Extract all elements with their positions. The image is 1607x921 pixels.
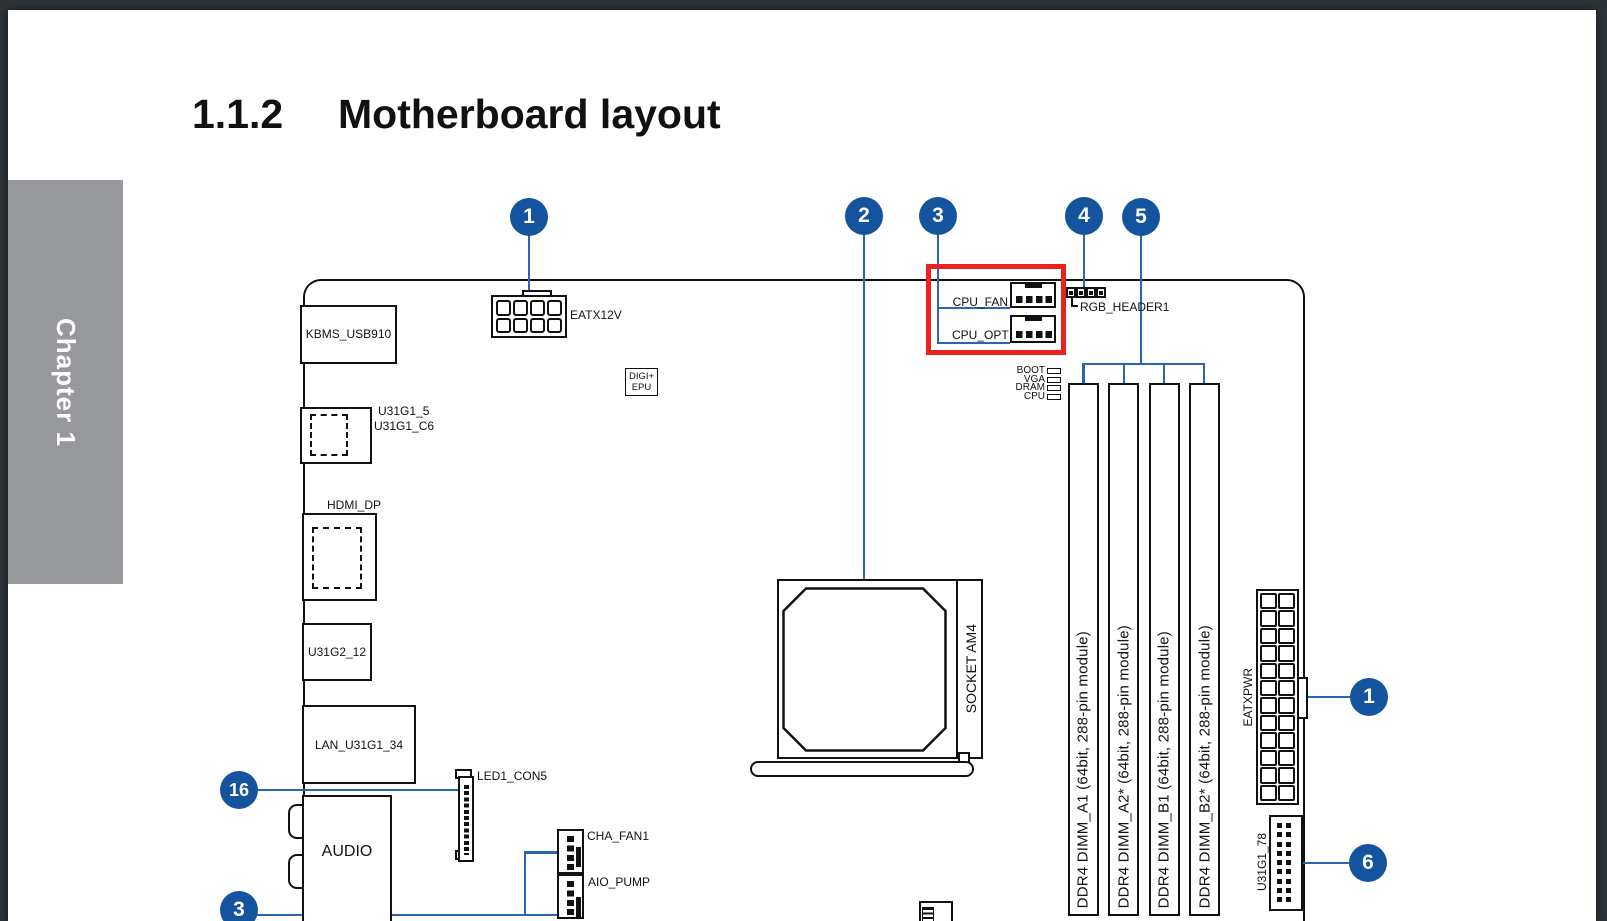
led1-con5-connector xyxy=(458,776,474,862)
eatxpwr-label: EATXPWR xyxy=(1241,668,1255,726)
leader-line-ledcon xyxy=(239,789,459,792)
u31g1-78-pin xyxy=(1277,842,1282,847)
dram-led xyxy=(1047,385,1061,391)
usb-type-connector xyxy=(300,407,372,464)
eatxpwr-pin xyxy=(1278,628,1295,644)
rgb-header-pin xyxy=(1076,287,1086,298)
eatxpwr-pin xyxy=(1260,732,1277,748)
callout-6-u31g178: 6 xyxy=(1349,844,1387,882)
callout-1-eatxpwr: 1 xyxy=(1350,678,1388,716)
led1-con5-label: LED1_CON5 xyxy=(477,770,547,783)
u31g1-78-connector xyxy=(1269,815,1303,911)
eatxpwr-pin xyxy=(1278,732,1295,748)
eatx12v-pin xyxy=(513,300,528,316)
rgb-header-bracket xyxy=(1071,298,1078,307)
socket-am4-label-strip: SOCKET AM4 xyxy=(958,579,983,759)
eatxpwr-pin xyxy=(1278,645,1295,661)
leader-riser-chafan xyxy=(524,851,527,916)
eatxpwr-pin xyxy=(1260,593,1277,609)
eatx12v-pin xyxy=(496,300,511,316)
eatxpwr-pin xyxy=(1278,715,1295,731)
callout-5-dimm: 5 xyxy=(1122,198,1160,236)
eatxpwr-label-wrap: EATXPWR xyxy=(1241,630,1255,765)
vga-led xyxy=(1047,377,1061,383)
section-number: 1.1.2 xyxy=(192,92,283,136)
u31g1-78-pin xyxy=(1286,860,1291,865)
socket-lever xyxy=(750,761,974,777)
socket-am4-label: SOCKET AM4 xyxy=(963,624,979,713)
usb-port-dashed xyxy=(310,414,348,456)
rgb-header-pins xyxy=(1066,287,1106,298)
cha-fan1-connector xyxy=(557,829,584,874)
eatxpwr-pin xyxy=(1260,663,1277,679)
page-title: Motherboard layout xyxy=(338,92,721,136)
leader-branch-chafan xyxy=(525,851,558,854)
u31g1-78-pin xyxy=(1286,888,1291,893)
u31g1-78-pin xyxy=(1277,860,1282,865)
dimm-slot-b1: DDR4 DIMM_B1 (64bit, 288-pin module) xyxy=(1149,383,1180,916)
dimm-slot-a1-label: DDR4 DIMM_A1 (64bit, 288-pin module) xyxy=(1075,631,1092,908)
aio-pump-connector xyxy=(557,874,584,919)
aio-pump-notch xyxy=(576,897,581,917)
eatxpwr-pin xyxy=(1278,680,1295,696)
eatxpwr-pin xyxy=(1278,767,1295,783)
eatx12v-pin xyxy=(496,318,511,334)
u31g1-78-pin xyxy=(1286,897,1291,902)
eatxpwr-pin xyxy=(1278,750,1295,766)
callout-4-rgb: 4 xyxy=(1065,197,1103,235)
aio-pump-pins xyxy=(567,881,574,915)
u31g1-78-pin xyxy=(1277,832,1282,837)
u31g1-78-pin xyxy=(1277,823,1282,828)
eatxpwr-pin xyxy=(1260,767,1277,783)
eatxpwr-pin xyxy=(1260,785,1277,801)
leader-line-dimm xyxy=(1140,217,1143,364)
manual-page: Chapter 1 1.1.2 Motherboard layout KBMS_… xyxy=(8,10,1596,921)
led1-con5-pins xyxy=(464,785,469,855)
eatxpwr-pin xyxy=(1260,697,1277,713)
u31g1-78-pin xyxy=(1277,851,1282,856)
eatx12v-pin xyxy=(547,300,562,316)
u31g1-78-pin xyxy=(1277,879,1282,884)
eatxpwr-pin xyxy=(1278,697,1295,713)
eatx12v-pin xyxy=(530,318,545,334)
u31g1-78-pin xyxy=(1286,869,1291,874)
bottom-partial-connector xyxy=(919,901,953,921)
chapter-tab: Chapter 1 xyxy=(8,180,123,584)
kbms-usb-label: KBMS_USB910 xyxy=(306,328,391,341)
u31g1-78-label-wrap: U31G1_78 xyxy=(1255,822,1268,902)
rgb-header-pin xyxy=(1096,287,1106,298)
eatxpwr-pin xyxy=(1278,663,1295,679)
eatxpwr-pin xyxy=(1260,628,1277,644)
cha-fan1-notch xyxy=(576,847,581,867)
eatx12v-pin xyxy=(530,300,545,316)
u31g1-5-label: U31G1_5 xyxy=(378,405,429,418)
leader-line-socket xyxy=(863,216,866,579)
eatxpwr-pin xyxy=(1278,785,1295,801)
eatx12v-label: EATX12V xyxy=(570,309,622,322)
u31g1-78-pin xyxy=(1286,851,1291,856)
kbms-usb-connector: KBMS_USB910 xyxy=(300,305,397,364)
cpu-led-label: CPU xyxy=(1000,392,1045,402)
boot-led xyxy=(1047,368,1061,374)
socket-am4-octagon xyxy=(782,587,947,752)
u31g1-78-label: U31G1_78 xyxy=(1255,833,1269,891)
cha-fan1-pins xyxy=(567,836,574,870)
chapter-tab-label: Chapter 1 xyxy=(50,318,81,447)
digi-epu-label-2: EPU xyxy=(632,382,652,393)
eatxpwr-pin xyxy=(1260,750,1277,766)
audio-label: AUDIO xyxy=(304,843,390,861)
callout-2-socket: 2 xyxy=(845,197,883,235)
dimm-bracket xyxy=(1082,363,1205,366)
hdmi-dp-label: HDMI_DP xyxy=(327,499,381,512)
u31g1-78-pin xyxy=(1286,879,1291,884)
digi-epu-chip: DIGI+ EPU xyxy=(625,368,658,396)
eatx12v-connector xyxy=(491,295,567,338)
callout-16-led-strip: 16 xyxy=(220,771,258,809)
eatxpwr-pin xyxy=(1278,593,1295,609)
cha-fan1-label: CHA_FAN1 xyxy=(587,830,649,843)
u31g1-78-pin xyxy=(1286,832,1291,837)
u31g2-12-connector: U31G2_12 xyxy=(302,623,372,681)
eatx12v-pin xyxy=(513,318,528,334)
u31g1-78-pin xyxy=(1277,897,1282,902)
cpu-led xyxy=(1047,394,1061,400)
callout-3-fans-bottom: 3 xyxy=(220,891,258,921)
dimm-slot-a2: DDR4 DIMM_A2* (64bit, 288-pin module) xyxy=(1108,383,1139,916)
eatxpwr-pin xyxy=(1260,680,1277,696)
lan-label: LAN_U31G1_34 xyxy=(315,738,403,752)
callout-3-fans-top: 3 xyxy=(919,197,957,235)
rgb-header-pin xyxy=(1066,287,1076,298)
eatx12v-pin xyxy=(547,318,562,334)
digi-epu-label-1: DIGI+ xyxy=(629,371,654,382)
eatxpwr-pin xyxy=(1260,610,1277,626)
u31g1-c6-label: U31G1_C6 xyxy=(374,420,434,433)
rgb-header-label: RGB_HEADER1 xyxy=(1080,301,1169,314)
eatxpwr-latch xyxy=(1297,677,1308,719)
dimm-slot-b2-label: DDR4 DIMM_B2* (64bit, 288-pin module) xyxy=(1196,625,1213,908)
eatxpwr-pin xyxy=(1278,610,1295,626)
bottom-partial-pins xyxy=(922,907,934,921)
u31g1-78-pin xyxy=(1286,823,1291,828)
dimm-slot-b1-label: DDR4 DIMM_B1 (64bit, 288-pin module) xyxy=(1156,631,1173,908)
highlight-red-box xyxy=(926,264,1066,355)
lan-connector: LAN_U31G1_34 xyxy=(302,705,416,784)
eatxpwr-pin xyxy=(1260,715,1277,731)
pdf-viewer-background: { "page": { "chapter_tab": "Chapter 1", … xyxy=(0,0,1607,921)
u31g1-78-pin xyxy=(1277,888,1282,893)
audio-connector: AUDIO xyxy=(302,795,392,921)
aio-pump-label: AIO_PUMP xyxy=(588,876,650,889)
callout-1-eatx12v: 1 xyxy=(510,198,548,236)
eatxpwr-pin xyxy=(1260,645,1277,661)
u31g2-12-label: U31G2_12 xyxy=(308,645,366,659)
u31g1-78-pin xyxy=(1277,869,1282,874)
hdmi-dp-connector xyxy=(302,513,377,601)
rgb-header-pin xyxy=(1086,287,1096,298)
dimm-slot-a2-label: DDR4 DIMM_A2* (64bit, 288-pin module) xyxy=(1115,625,1132,908)
u31g1-78-pin xyxy=(1286,842,1291,847)
hdmi-port-dashed xyxy=(312,527,362,589)
leader-line-aio xyxy=(239,914,558,917)
dimm-slot-b2: DDR4 DIMM_B2* (64bit, 288-pin module) xyxy=(1189,383,1220,916)
eatxpwr-connector xyxy=(1256,589,1299,805)
dimm-slot-a1: DDR4 DIMM_A1 (64bit, 288-pin module) xyxy=(1068,383,1099,916)
